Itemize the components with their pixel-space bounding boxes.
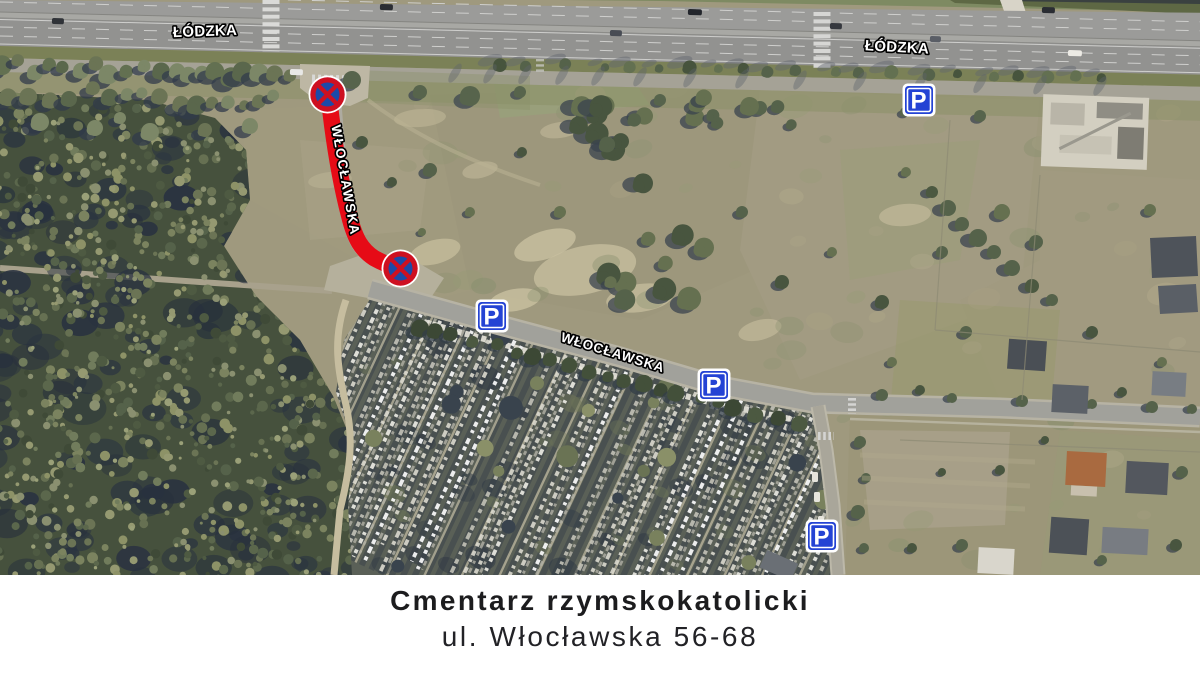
svg-text:P: P [813,524,829,551]
svg-text:ŁÓDZKA: ŁÓDZKA [864,36,929,57]
svg-text:P: P [705,373,721,400]
svg-text:P: P [483,304,499,331]
svg-text:ŁÓDZKA: ŁÓDZKA [173,21,238,41]
svg-text:P: P [910,88,926,115]
